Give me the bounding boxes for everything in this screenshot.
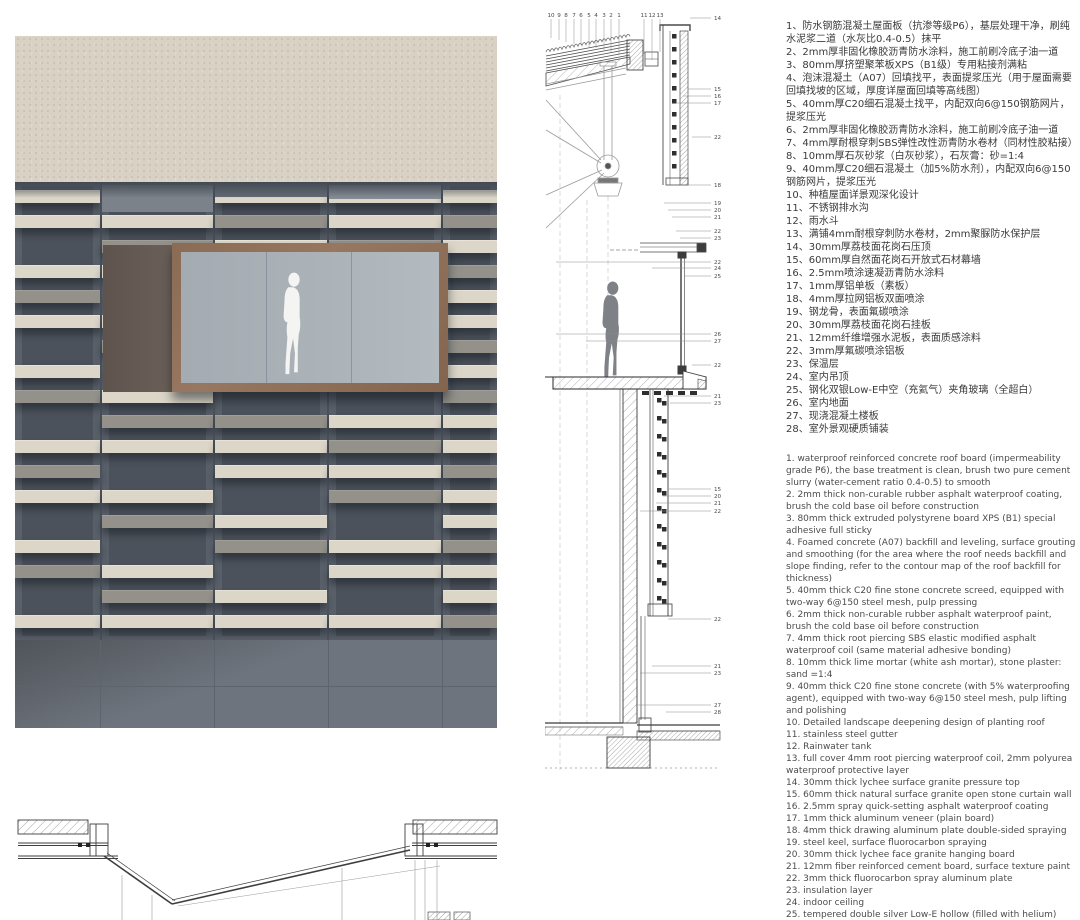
cladding-anchor [672,47,677,52]
stone-slat [443,565,497,578]
note-line-en: 10. Detailed landscape deepening design … [786,717,1078,729]
callout-label: 23 [714,236,722,242]
stone-slat [15,565,100,578]
note-line-en: 22. 3mm thick fluorocarbon spray aluminu… [786,873,1078,885]
stone-slat [215,440,327,453]
callout-label: 6 [579,13,583,19]
note-line-cn: 16、2.5mm喷涂速凝沥青防水涂料 [786,267,1078,280]
callout-label: 27 [714,703,722,709]
note-line-en: 24. indoor ceiling [786,897,1078,909]
stone-slat [15,615,100,628]
note-line-en: 8. 10mm thick lime mortar (white ash mor… [786,657,1078,681]
cladding-anchor [672,125,677,130]
notes-english: 1. waterproof reinforced concrete roof b… [786,453,1078,920]
stone-slat [15,490,100,503]
stone-slat [329,490,441,503]
note-line-en: 6. 2mm thick non-curable rubber asphalt … [786,609,1078,633]
stone-slat [102,265,213,278]
callout-label: 22 [714,363,721,369]
stone-slat [443,365,497,378]
stone-slat [443,490,497,503]
note-line-cn: 23、保温层 [786,358,1078,371]
note-line-cn: 24、室内吊顶 [786,371,1078,384]
panel-joint [328,640,329,728]
note-line-en: 15. 60mm thick natural surface granite o… [786,789,1078,801]
stone-slat-layer [15,182,497,640]
callout-label: 22 [714,509,721,515]
stone-slat [215,615,327,628]
note-line-en: 4. Foamed concrete (A07) backfill and le… [786,537,1078,585]
note-line-cn: 18、4mm厚拉网铝板双面喷涂 [786,293,1078,306]
note-line-cn: 28、室外景观硬质铺装 [786,423,1078,436]
callout-label: 9 [557,13,561,19]
stone-slat [15,440,100,453]
callout-label: 12 [648,13,655,19]
plan-detail-drawing [15,800,520,920]
cladding-anchor [657,506,662,511]
cladding-anchor [662,401,667,406]
stone-slat [15,290,100,303]
callout-label: 15 [714,87,722,93]
note-line-cn: 17、1mm厚铝单板（素板） [786,280,1078,293]
callout-label: 25 [714,274,722,280]
stone-slat [15,365,100,378]
callout-label: 10 [547,13,555,19]
note-line-en: 13. full cover 4mm root piercing waterpr… [786,753,1078,777]
callout-label: 13 [656,13,664,19]
stone-slat [443,265,497,278]
note-line-en: 9. 40mm thick C20 fine stone concrete (w… [786,681,1078,717]
note-line-cn: 13、满铺4mm耐根穿刺防水卷材，2mm聚脲防水保护层 [786,228,1078,241]
callout-label: 21 [714,215,722,221]
stone-slat [443,515,497,528]
stone-slat [15,315,100,328]
stone-slat [443,240,497,253]
note-line-en: 17. 1mm thick aluminum veneer (plain boa… [786,813,1078,825]
note-line-en: 19. steel keel, surface fluorocarbon spr… [786,837,1078,849]
cladding-anchor [657,452,662,457]
callout-label: 22 [714,135,721,141]
callout-label: 7 [572,13,576,19]
callout-label: 22 [714,617,721,623]
cladding-anchor [672,73,677,78]
note-line-cn: 25、钢化双银Low-E中空（充氦气）夹角玻璃（全超白） [786,384,1078,397]
cladding-anchor [662,563,667,568]
note-line-cn: 6、2mm厚非固化橡胶沥青防水涂料，施工前刷冷底子油一道 [786,124,1078,137]
note-line-en: 7. 4mm thick root piercing SBS elastic m… [786,633,1078,657]
cladding-anchor [662,473,667,478]
panel-joint [100,640,101,728]
stone-slat [443,315,497,328]
cladding-anchor [672,86,677,91]
column-recess [222,186,320,636]
callout-label: 27 [714,339,722,345]
callout-label: 23 [714,671,722,677]
note-line-cn: 12、雨水斗 [786,215,1078,228]
note-line-cn: 4、泡沫混凝土（A07）回填找平，表面提浆压光（用于屋面需要回填找坡的区域，厚度… [786,72,1078,98]
stone-slat [329,565,441,578]
stone-slat [102,515,213,528]
cladding-anchor [662,545,667,550]
callout-label: 16 [714,94,722,100]
panel-joint [214,640,215,728]
stone-slat [15,540,100,553]
stone-slat [15,215,100,228]
stone-slat [443,540,497,553]
callout-label: 23 [714,401,722,407]
note-line-en: 23. insulation layer [786,885,1078,897]
callout-label: 21 [714,394,722,400]
facade-slat-wall [15,182,497,640]
note-line-en: 11. stainless steel gutter [786,729,1078,741]
cladding-anchor [672,112,677,117]
note-line-cn: 7、4mm厚耐根穿刺SBS弹性改性沥青防水卷材（同材性胶粘接） [786,137,1078,150]
note-line-en: 18. 4mm thick drawing aluminum plate dou… [786,825,1078,837]
callout-label: 8 [564,13,568,19]
callout-label: 20 [714,208,722,214]
section-person-silhouette [603,281,619,377]
note-line-cn: 26、室内地面 [786,397,1078,410]
note-line-en: 25. tempered double silver Low-E hollow … [786,909,1078,920]
cladding-anchor [657,560,662,565]
facade-concrete-band [15,36,497,183]
stone-slat [215,515,327,528]
stone-slat [102,315,213,328]
stone-slat [215,215,327,228]
callout-label: 21 [714,664,722,670]
stone-slat [102,240,213,253]
cladding-anchor [657,596,662,601]
stone-slat [215,240,327,253]
stone-slat [102,490,213,503]
cladding-anchor [672,151,677,156]
callout-label: 5 [587,13,591,19]
stone-slat [102,340,213,353]
cladding-anchor [657,398,662,403]
stone-slat [215,265,327,278]
stone-slat [102,565,213,578]
stone-slat [329,440,441,453]
cladding-anchor [662,419,667,424]
stone-slat [102,215,213,228]
cladding-anchor [657,578,662,583]
stone-slat [15,390,100,403]
stone-slat [443,615,497,628]
stone-slat [443,340,497,353]
facade-rendering [15,36,497,728]
stone-slat [102,415,213,428]
callout-label: 3 [602,13,606,19]
stone-slat [215,540,327,553]
base-wall-shadow [15,640,497,728]
cladding-anchor [657,434,662,439]
cladding-anchor [657,542,662,547]
callout-label: 28 [714,710,722,716]
cladding-anchor [662,491,667,496]
stone-slat [329,415,441,428]
callout-label: 1 [617,13,621,19]
cladding-anchor [672,164,677,169]
cladding-anchor [662,599,667,604]
note-line-cn: 10、种植屋面详景观深化设计 [786,189,1078,202]
stone-slat [215,415,327,428]
cladding-anchor [662,527,667,532]
stone-slat [443,415,497,428]
callout-label: 26 [714,332,722,338]
stone-slat [215,590,327,603]
stone-slat [329,615,441,628]
note-line-en: 21. 12mm fiber reinforced cement board, … [786,861,1078,873]
callout-label: 24 [714,266,722,272]
stone-slat [15,265,100,278]
callout-label: 22 [714,229,721,235]
detail-sheet-page: 1098765432111121314151617221819202122232… [0,0,1080,920]
callout-label: 2 [609,13,613,19]
stone-slat [329,465,441,478]
note-line-en: 16. 2.5mm spray quick-setting asphalt wa… [786,801,1078,813]
stone-slat [102,615,213,628]
note-line-en: 5. 40mm thick C20 fine stone concrete sc… [786,585,1078,609]
callout-label: 14 [714,16,722,22]
note-line-cn: 9、40mm厚C20细石混凝土（加5%防水剂），内配双向6@150钢筋网片，提浆… [786,163,1078,189]
stone-slat [443,465,497,478]
notes-chinese: 1、防水钢筋混凝土屋面板（抗渗等级P6），基层处理干净，刷纯水泥浆二道（水灰比0… [786,20,1078,436]
stone-slat [102,590,213,603]
panel-joint [15,686,497,687]
note-line-cn: 21、12mm纤维增强水泥板，表面质感涂料 [786,332,1078,345]
note-line-en: 20. 30mm thick lychee face granite hangi… [786,849,1078,861]
stone-slat [15,465,100,478]
cladding-anchor [672,138,677,143]
callout-label: 17 [714,101,722,107]
callout-label: 18 [714,183,722,189]
note-line-cn: 20、30mm厚荔枝面花岗石挂板 [786,319,1078,332]
cladding-anchor [657,416,662,421]
note-line-cn: 14、30mm厚荔枝面花岗石压顶 [786,241,1078,254]
stone-slat [102,440,213,453]
note-line-en: 14. 30mm thick lychee surface granite pr… [786,777,1078,789]
stone-slat [443,440,497,453]
band-shadow [15,182,497,198]
stone-slat [329,215,441,228]
note-line-cn: 15、60mm厚自然面花岗石开放式石材幕墙 [786,254,1078,267]
cladding-anchor [657,470,662,475]
cladding-anchor [662,581,667,586]
note-line-cn: 2、2mm厚非固化橡胶沥青防水涂料，施工前刷冷底子油一道 [786,46,1078,59]
stone-slat [443,390,497,403]
callout-label: 11 [640,13,648,19]
stone-slat [443,215,497,228]
note-line-cn: 1、防水钢筋混凝土屋面板（抗渗等级P6），基层处理干净，刷纯水泥浆二道（水灰比0… [786,20,1078,46]
callout-label: 4 [594,13,598,19]
stone-slat [329,540,441,553]
note-line-en: 1. waterproof reinforced concrete roof b… [786,453,1078,489]
stone-slat [443,590,497,603]
cladding-anchor [662,455,667,460]
note-line-cn: 8、10mm厚石灰砂浆（白灰砂浆），石灰膏：砂=1:4 [786,150,1078,163]
stone-slat [102,390,213,403]
note-line-cn: 11、不锈钢排水沟 [786,202,1078,215]
note-line-cn: 27、现浇混凝土楼板 [786,410,1078,423]
callout-label: 21 [714,501,722,507]
cladding-anchor [672,99,677,104]
cladding-anchor [657,524,662,529]
note-line-cn: 3、80mm厚挤塑聚苯板XPS（B1级）专用粘接剂满粘 [786,59,1078,72]
cladding-anchor [657,488,662,493]
callout-label: 15 [714,487,722,493]
cladding-anchor [662,437,667,442]
note-line-cn: 19、钢龙骨，表面氟碳喷涂 [786,306,1078,319]
stone-slat [329,240,441,253]
wall-section-drawing: 1098765432111121314151617221819202122232… [545,5,780,777]
note-line-cn: 5、40mm厚C20细石混凝土找平，内配双向6@150钢筋网片，提浆压光 [786,98,1078,124]
callout-label: 20 [714,494,722,500]
note-line-cn: 22、3mm厚氟碳喷涂铝板 [786,345,1078,358]
stone-slat [215,465,327,478]
cladding-anchor [672,60,677,65]
callout-label: 19 [714,201,722,207]
note-line-en: 3. 80mm thick extruded polystyrene board… [786,513,1078,537]
note-line-en: 12. Rainwater tank [786,741,1078,753]
facade-base-wall [15,640,497,728]
panel-joint [442,640,443,728]
stone-slat [443,290,497,303]
note-line-en: 2. 2mm thick non-curable rubber asphalt … [786,489,1078,513]
cladding-anchor [672,34,677,39]
